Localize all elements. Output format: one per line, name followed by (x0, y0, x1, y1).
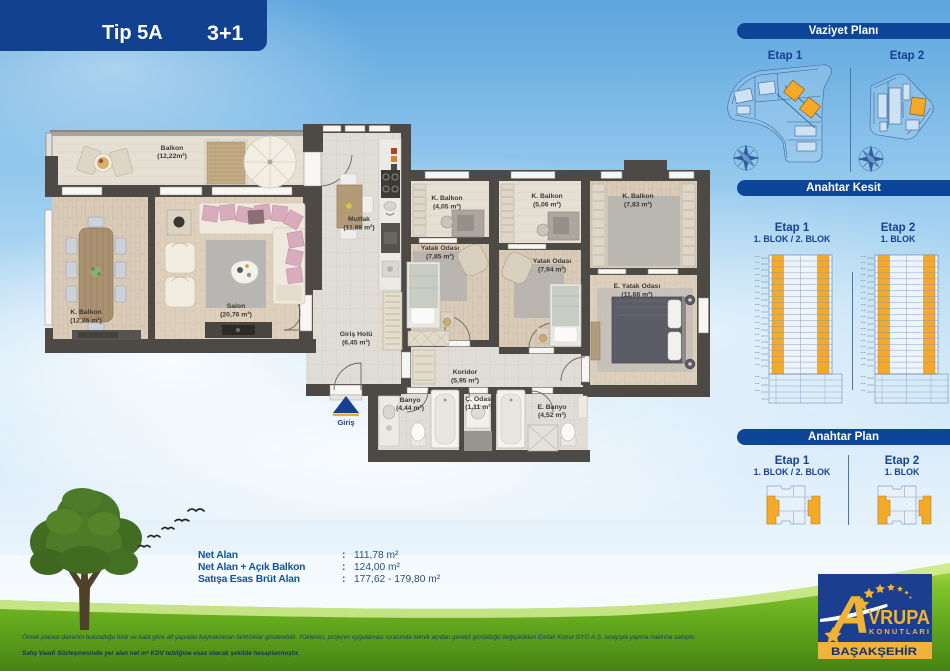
svg-text:A: A (830, 586, 870, 645)
svg-text:(7,83 m²): (7,83 m²) (624, 202, 652, 209)
svg-text:(20,76 m²): (20,76 m²) (220, 312, 252, 319)
svg-text:Yatak Odası: Yatak Odası (533, 258, 572, 265)
svg-text:Koridor: Koridor (453, 369, 478, 376)
svg-text:K. Balkon: K. Balkon (622, 193, 653, 200)
svg-text:E. Banyo: E. Banyo (537, 404, 566, 411)
svg-text:(4,52 m²): (4,52 m²) (538, 412, 566, 419)
svg-text:K. Balkon: K. Balkon (431, 195, 462, 202)
svg-text:(5,95 m²): (5,95 m²) (451, 378, 479, 385)
svg-text:(12,26 m²): (12,26 m²) (70, 318, 102, 325)
svg-text:K O N U T L A R I: K O N U T L A R I (869, 629, 929, 636)
svg-text:BAŞAKŞEHİR: BAŞAKŞEHİR (831, 645, 917, 658)
svg-text:(12,22m²): (12,22m²) (157, 153, 187, 160)
svg-text:(6,45 m²): (6,45 m²) (342, 340, 370, 347)
svg-text:(7,85 m²): (7,85 m²) (426, 254, 454, 261)
svg-text:Giriş: Giriş (337, 418, 354, 427)
svg-text:(4,05 m²): (4,05 m²) (433, 204, 461, 211)
svg-text:(4,44 m²): (4,44 m²) (396, 405, 424, 412)
svg-text:(11,88 m²): (11,88 m²) (343, 225, 374, 232)
svg-text:(5,06 m²): (5,06 m²) (533, 202, 561, 209)
svg-text:K. Balkon: K. Balkon (70, 309, 101, 316)
svg-text:Giriş Holü: Giriş Holü (340, 331, 372, 338)
svg-text:Yatak Odası: Yatak Odası (421, 245, 460, 252)
svg-text:(1,11 m²): (1,11 m²) (465, 404, 493, 411)
svg-text:(7,94 m²): (7,94 m²) (538, 267, 566, 274)
svg-text:Banyo: Banyo (400, 397, 421, 404)
svg-text:Ç. Odası: Ç. Odası (465, 396, 493, 403)
svg-text:(11,68 m²): (11,68 m²) (621, 292, 652, 299)
svg-text:E. Yatak Odası: E. Yatak Odası (614, 283, 661, 290)
svg-text:Mutfak: Mutfak (348, 216, 370, 223)
svg-text:K. Balkon: K. Balkon (531, 193, 562, 200)
svg-text:VRUPA: VRUPA (868, 607, 930, 629)
svg-text:Salon: Salon (227, 303, 246, 310)
svg-text:Balkon: Balkon (161, 145, 184, 152)
